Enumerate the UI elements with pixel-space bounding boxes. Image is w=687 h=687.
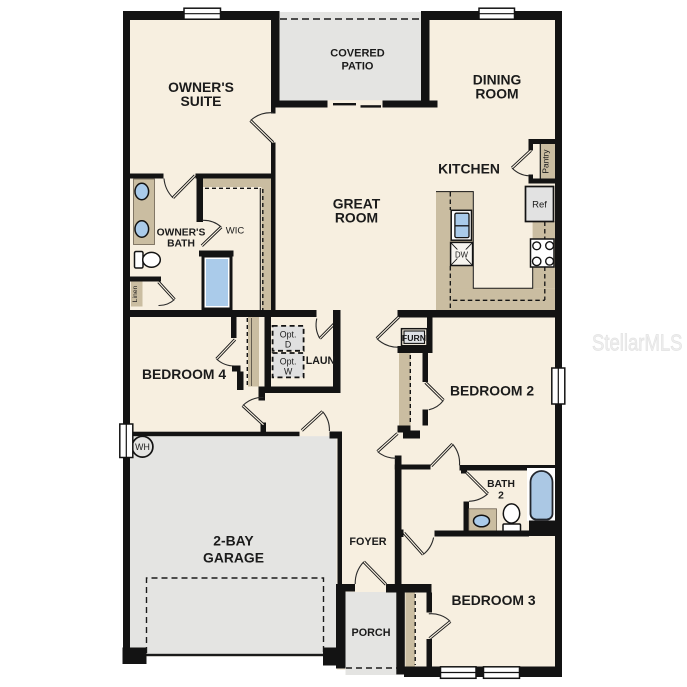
- svg-text:ROOM: ROOM: [475, 86, 518, 102]
- svg-text:PORCH: PORCH: [352, 627, 391, 639]
- svg-text:ROOM: ROOM: [335, 210, 378, 226]
- svg-text:KITCHEN: KITCHEN: [438, 161, 500, 177]
- svg-text:BATH: BATH: [167, 238, 195, 249]
- svg-text:PATIO: PATIO: [342, 61, 374, 73]
- svg-text:BATH: BATH: [487, 479, 515, 490]
- svg-text:Ref: Ref: [532, 199, 547, 210]
- svg-text:BEDROOM 4: BEDROOM 4: [142, 366, 226, 382]
- svg-text:OWNER'S: OWNER'S: [157, 228, 206, 239]
- svg-text:Opt.: Opt.: [280, 330, 297, 340]
- svg-text:Pantry: Pantry: [540, 149, 550, 174]
- svg-text:SUITE: SUITE: [181, 93, 222, 109]
- svg-text:GARAGE: GARAGE: [203, 550, 264, 566]
- svg-text:BEDROOM 3: BEDROOM 3: [451, 592, 535, 608]
- svg-text:WH: WH: [135, 442, 150, 452]
- svg-text:Opt.: Opt.: [280, 357, 297, 367]
- svg-text:LAUN: LAUN: [306, 355, 335, 367]
- svg-text:W: W: [284, 367, 293, 377]
- svg-text:BEDROOM 2: BEDROOM 2: [450, 383, 534, 399]
- svg-text:StellarMLS: StellarMLS: [592, 330, 683, 356]
- svg-text:2: 2: [498, 490, 504, 501]
- svg-text:2-BAY: 2-BAY: [213, 533, 254, 549]
- svg-text:WIC: WIC: [226, 225, 245, 236]
- svg-text:COVERED: COVERED: [330, 48, 384, 60]
- svg-text:FURN: FURN: [402, 333, 426, 343]
- svg-text:DW: DW: [455, 250, 469, 259]
- svg-text:FOYER: FOYER: [349, 536, 386, 548]
- svg-text:D: D: [285, 340, 291, 350]
- svg-text:Linen: Linen: [132, 285, 139, 302]
